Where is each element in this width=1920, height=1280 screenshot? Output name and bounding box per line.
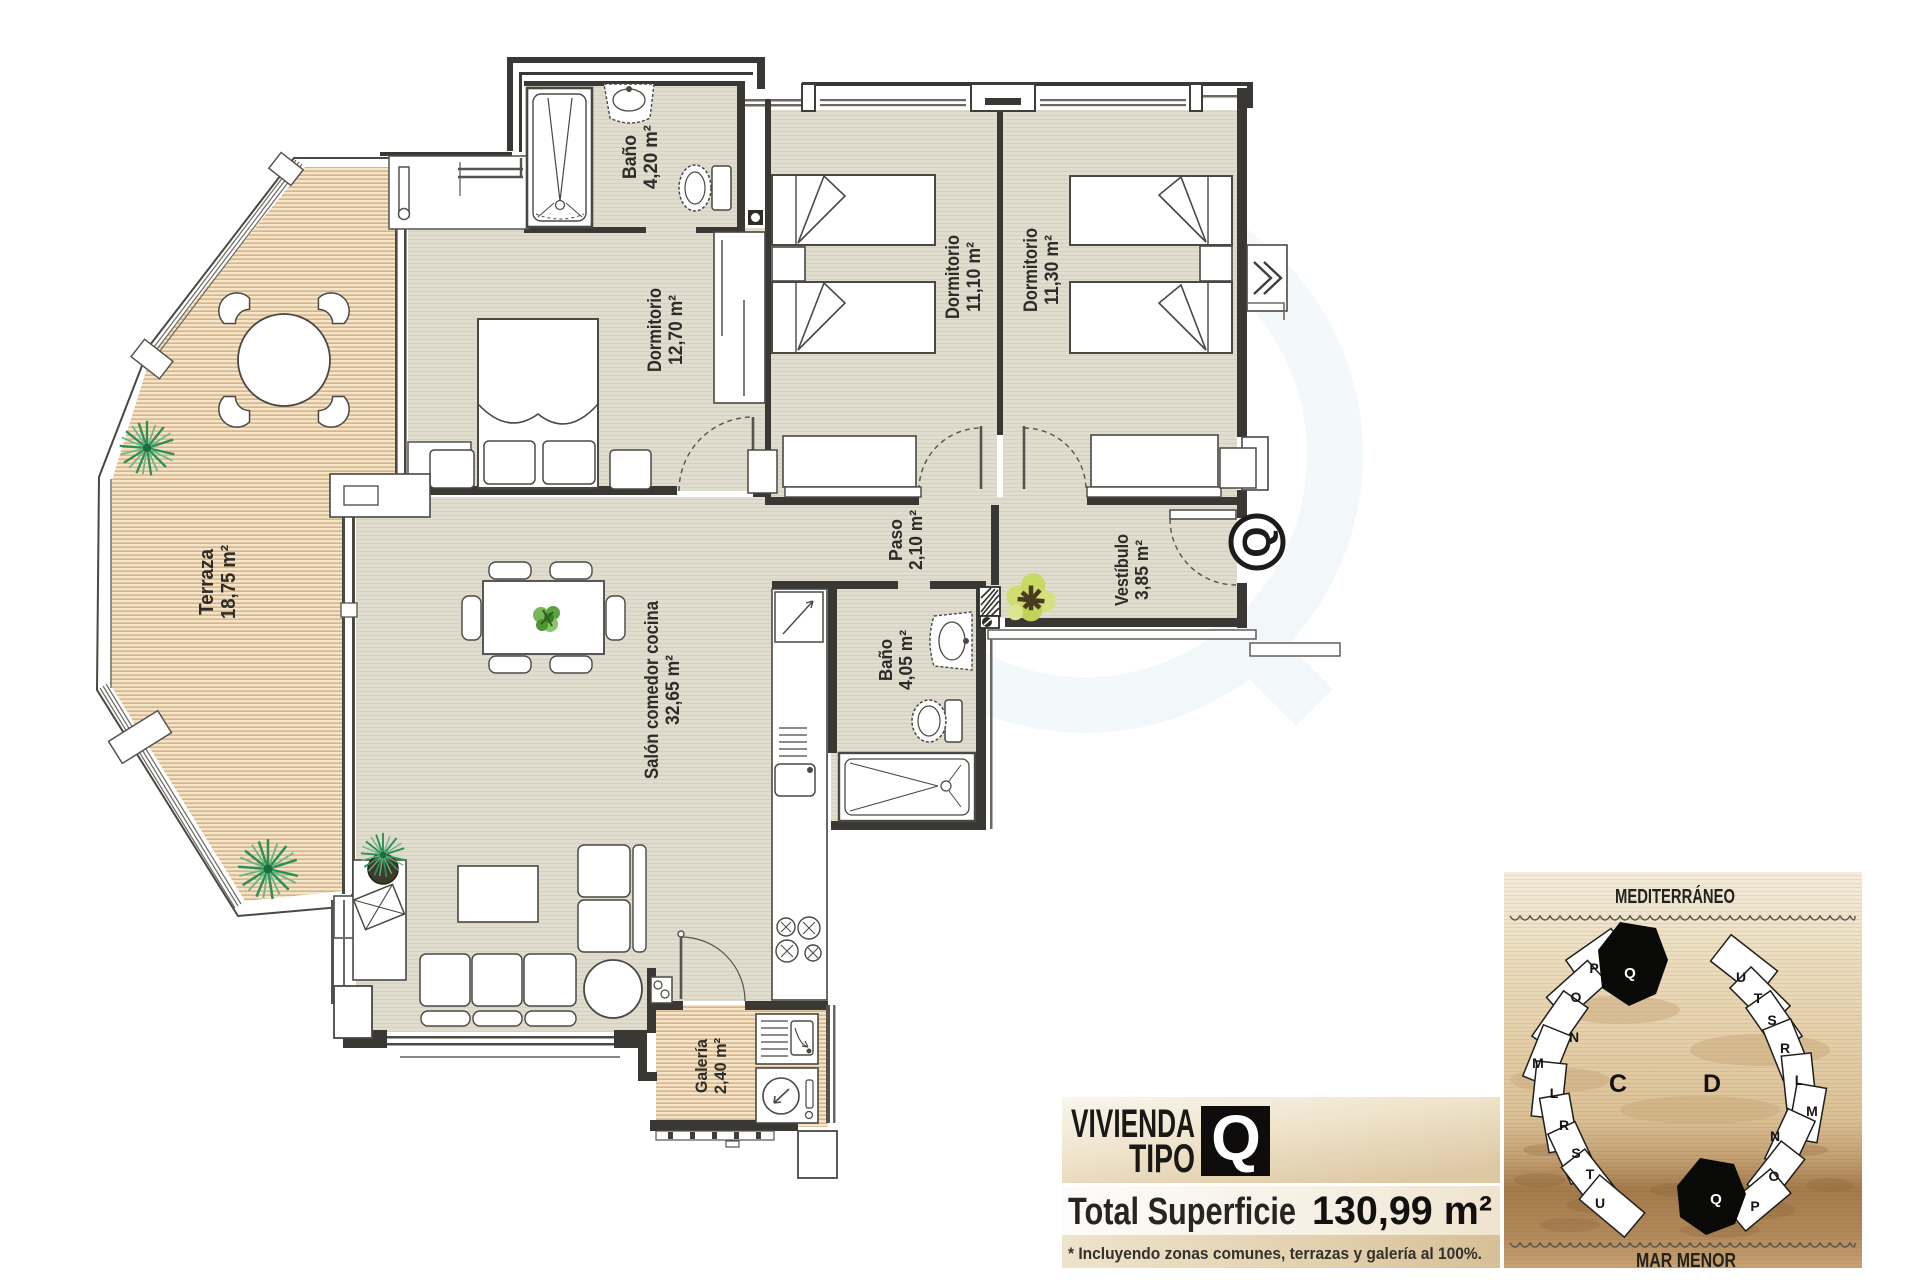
svg-text:130,99 m²: 130,99 m² xyxy=(1312,1189,1492,1233)
svg-text:Dormitorio: Dormitorio xyxy=(645,288,666,372)
svg-text:MAR MENOR: MAR MENOR xyxy=(1636,1250,1736,1272)
svg-text:Q: Q xyxy=(1211,1102,1261,1174)
svg-text:T: T xyxy=(1754,990,1763,1006)
svg-text:2,10 m²: 2,10 m² xyxy=(906,510,926,570)
svg-text:Paso: Paso xyxy=(886,519,906,561)
svg-text:S: S xyxy=(1767,1012,1776,1028)
svg-text:11,30 m²: 11,30 m² xyxy=(1042,235,1063,305)
svg-text:4,05 m²: 4,05 m² xyxy=(896,630,916,690)
svg-text:MEDITERRÁNEO: MEDITERRÁNEO xyxy=(1615,885,1735,908)
svg-text:L: L xyxy=(1550,1085,1559,1101)
svg-text:Q: Q xyxy=(1710,1191,1722,1208)
svg-text:Baño: Baño xyxy=(620,135,641,179)
svg-text:S: S xyxy=(1571,1145,1580,1161)
svg-text:32,65 m²: 32,65 m² xyxy=(663,655,684,725)
svg-text:N: N xyxy=(1770,1128,1780,1144)
svg-text:Total Superficie: Total Superficie xyxy=(1068,1191,1296,1233)
svg-text:T: T xyxy=(1586,1166,1595,1182)
svg-text:Dormitorio: Dormitorio xyxy=(943,235,964,319)
svg-text:U: U xyxy=(1736,969,1746,985)
svg-text:12,70 m²: 12,70 m² xyxy=(666,295,687,365)
svg-text:Salón comedor cocina: Salón comedor cocina xyxy=(642,601,663,779)
svg-text:11,10 m²: 11,10 m² xyxy=(964,242,985,312)
svg-text:P: P xyxy=(1750,1198,1759,1214)
svg-text:TIPO: TIPO xyxy=(1129,1137,1195,1181)
svg-text:L: L xyxy=(1795,1072,1804,1088)
svg-text:Dormitorio: Dormitorio xyxy=(1021,228,1042,312)
svg-text:C: C xyxy=(1609,1070,1627,1098)
svg-text:Terraza: Terraza xyxy=(196,548,218,615)
svg-text:D: D xyxy=(1703,1070,1721,1098)
svg-text:4,20 m²: 4,20 m² xyxy=(641,125,662,189)
svg-text:Q: Q xyxy=(1624,965,1636,982)
svg-text:O: O xyxy=(1769,1168,1780,1184)
svg-text:P: P xyxy=(1589,960,1598,976)
svg-text:3,85 m²: 3,85 m² xyxy=(1132,540,1152,600)
svg-text:R: R xyxy=(1780,1040,1790,1056)
svg-text:2,40 m²: 2,40 m² xyxy=(711,1038,730,1094)
svg-text:M: M xyxy=(1806,1103,1818,1119)
svg-text:N: N xyxy=(1569,1029,1579,1045)
svg-text:R: R xyxy=(1559,1117,1569,1133)
svg-text:O: O xyxy=(1571,989,1582,1005)
svg-text:Q: Q xyxy=(1235,526,1279,557)
svg-text:Vestíbulo: Vestíbulo xyxy=(1112,534,1132,606)
svg-text:M: M xyxy=(1532,1055,1544,1071)
svg-text:Galería: Galería xyxy=(692,1038,711,1093)
svg-text:Baño: Baño xyxy=(876,639,896,681)
svg-text:18,75 m²: 18,75 m² xyxy=(218,545,240,619)
svg-text:U: U xyxy=(1595,1195,1605,1211)
svg-text:* Incluyendo zonas comunes, te: * Incluyendo zonas comunes, terrazas y g… xyxy=(1068,1244,1482,1263)
